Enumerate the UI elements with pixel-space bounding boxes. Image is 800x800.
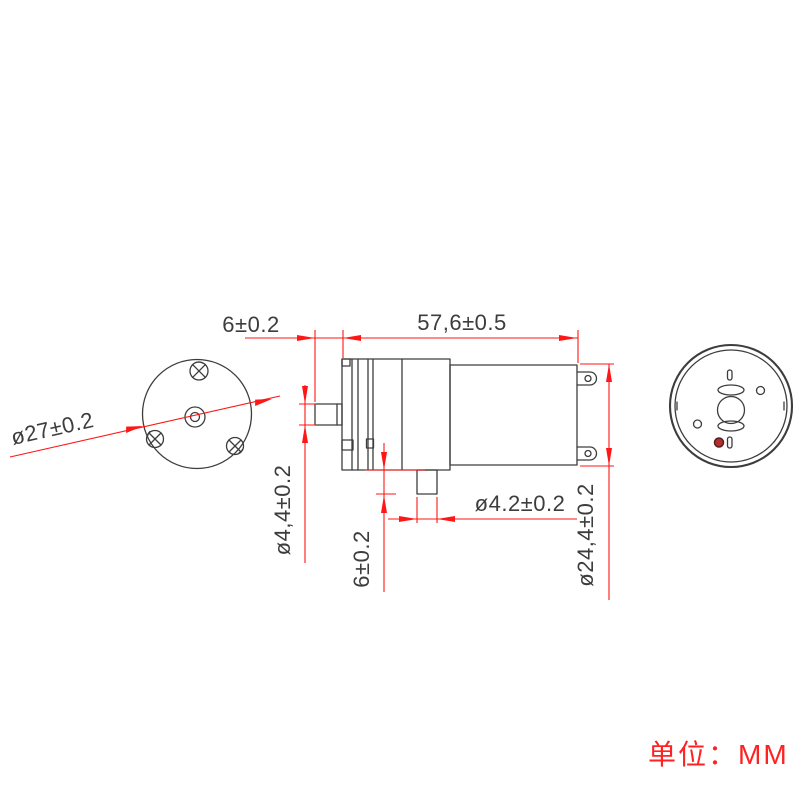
left-nozzle <box>315 404 342 425</box>
top-dim-lines <box>245 330 578 402</box>
rear-slot-top <box>728 370 733 380</box>
arrow-bottom-nozzle-dia-left <box>399 516 417 522</box>
rear-bearing-circle <box>718 397 745 424</box>
terminal-tab-lower <box>577 447 597 460</box>
motor-body <box>450 365 577 465</box>
rear-upper-lip <box>718 385 744 395</box>
side-view <box>315 359 597 494</box>
rear-hole-left <box>694 420 702 428</box>
left-nozzle-diameter-label: ø4,4±0.2 <box>270 465 295 556</box>
rear-view-inner-ring <box>675 350 787 462</box>
front-diameter-arrow-right <box>254 396 273 406</box>
pump-head-section-lines <box>352 359 402 470</box>
rear-slot-bottom <box>728 437 733 448</box>
dimensions: 6±0.2 57,6±0.5 ø4,4±0.2 6±0.2 ø4.2±0.2 ø… <box>222 310 614 600</box>
arrow-left-nozzle-bottom <box>302 425 308 443</box>
arrow-body-length-right <box>559 335 577 341</box>
body-length-label: 57,6±0.5 <box>417 310 506 335</box>
nozzle-offset-label: 6±0.2 <box>222 312 279 337</box>
bottom-nozzle-length-lines <box>365 443 425 592</box>
screw-top <box>190 362 208 380</box>
arrow-bottom-nozzle-len-bottom <box>381 495 387 513</box>
front-center-hub-inner <box>191 413 200 422</box>
motor-diameter-label: ø24,4±0.2 <box>573 483 598 586</box>
pump-drawing-svg: ø27±0.2 6±0.2 57,6±0.5 <box>0 0 800 800</box>
pump-head-top-notch <box>342 359 350 366</box>
terminal-tab-upper <box>577 372 597 385</box>
technical-drawing-page: ø27±0.2 6±0.2 57,6±0.5 <box>0 0 800 800</box>
arrow-nozzle-offset-right <box>343 335 361 341</box>
rear-hole-right <box>757 387 765 395</box>
bottom-nozzle-diameter-label: ø4.2±0.2 <box>475 491 566 516</box>
front-view: ø27±0.2 <box>9 360 280 469</box>
arrow-nozzle-offset-left <box>297 335 315 341</box>
rear-ring-ticks <box>677 402 784 410</box>
bottom-nozzle-length-label: 6±0.2 <box>349 530 374 587</box>
front-view-outline-circle <box>143 360 252 469</box>
unit-label: 单位：MM <box>648 739 789 770</box>
arrow-motor-dia-bottom <box>606 448 612 466</box>
front-diameter-label: ø27±0.2 <box>9 407 97 450</box>
bottom-nozzle <box>417 470 437 494</box>
rear-view-outer-circle <box>670 345 792 467</box>
arrow-bottom-nozzle-len-top <box>381 452 387 470</box>
arrow-bottom-nozzle-dia-right <box>437 516 455 522</box>
rear-lower-lip <box>718 421 744 431</box>
arrow-motor-dia-top <box>606 364 612 382</box>
arrow-left-nozzle-top <box>302 386 308 404</box>
rear-polarity-dot <box>715 438 724 447</box>
left-nozzle-dia-lines <box>299 385 316 563</box>
rear-view <box>670 345 792 467</box>
